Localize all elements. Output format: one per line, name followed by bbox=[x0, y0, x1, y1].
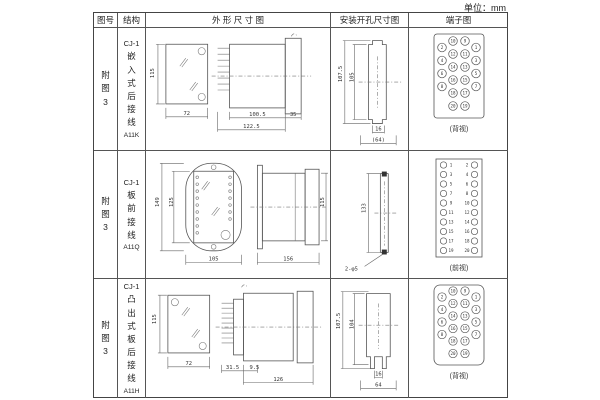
row3-fig-no-label: 附图3 bbox=[100, 319, 111, 359]
row3-outline-cell: 115 72 31.5 9.5 126 bbox=[146, 279, 331, 398]
row3-terminal-drawing: 1091211141316151817201921436587 (背视) bbox=[409, 279, 508, 398]
svg-text:4: 4 bbox=[466, 172, 469, 177]
row2-mounting-drawing: 133 2-φ5 bbox=[331, 151, 408, 279]
header-structure-label: 结构 bbox=[123, 14, 140, 26]
header-outline-label: 外 形 尺 寸 图 bbox=[212, 14, 264, 26]
row3-terminal-cell: 1091211141316151817201921436587 (背视) bbox=[409, 279, 508, 398]
row3-dim-lip: 9.5 bbox=[249, 365, 259, 371]
svg-text:9: 9 bbox=[450, 200, 453, 205]
row3-mount-inner: 104 bbox=[350, 319, 356, 329]
row3-outline-drawing: 115 72 31.5 9.5 126 bbox=[146, 279, 330, 398]
svg-text:16: 16 bbox=[450, 77, 456, 82]
row1-outline-cell: 115 72 100.5 122.5 35 bbox=[146, 28, 331, 151]
svg-text:6: 6 bbox=[466, 181, 469, 186]
row2-mounting-cell: 133 2-φ5 bbox=[331, 151, 409, 279]
svg-text:12: 12 bbox=[450, 51, 456, 56]
row1-structure: CJ-1 嵌入式后接线 A11K bbox=[118, 28, 146, 151]
row3-terminal-grid: 1091211141316151817201921436587 bbox=[438, 287, 480, 358]
svg-text:10: 10 bbox=[464, 200, 470, 205]
row2-mount-holes: 2-φ5 bbox=[345, 266, 358, 272]
svg-text:16: 16 bbox=[464, 229, 470, 234]
row1-mount-slot: 16 bbox=[375, 126, 382, 132]
svg-text:14: 14 bbox=[450, 64, 456, 69]
row3-dim-width: 72 bbox=[185, 361, 192, 367]
svg-text:18: 18 bbox=[450, 339, 456, 344]
row2-terminal-drawing: 1357911131517192468101214161820 (前视) bbox=[409, 151, 508, 279]
row2-terminal-grid: 1357911131517192468101214161820 bbox=[440, 161, 477, 253]
row2-dim-length: 156 bbox=[283, 256, 293, 262]
svg-text:11: 11 bbox=[462, 51, 468, 56]
svg-text:2: 2 bbox=[466, 162, 469, 167]
row1-mounting-cell: 107.5 105 16 (64) bbox=[331, 28, 409, 151]
row1-dim-width: 72 bbox=[183, 110, 190, 116]
svg-text:3: 3 bbox=[450, 172, 453, 177]
row1-terminal-cell: 1091211141316151817201921436587 (背视) bbox=[409, 28, 508, 151]
svg-text:13: 13 bbox=[462, 314, 468, 319]
svg-text:20: 20 bbox=[450, 351, 456, 356]
svg-text:15: 15 bbox=[462, 326, 468, 331]
row1-mount-width: (64) bbox=[372, 137, 385, 143]
header-mounting-label: 安装开孔尺寸图 bbox=[340, 14, 400, 26]
row3-structure: CJ-1 凸出式板后接线 A11H bbox=[118, 279, 146, 398]
svg-text:20: 20 bbox=[450, 103, 456, 108]
row3-mount-slot: 16 bbox=[375, 372, 382, 378]
row3-view-label: (背视) bbox=[450, 371, 469, 380]
svg-text:10: 10 bbox=[450, 289, 456, 294]
row2-dim-plate-h: 149 bbox=[155, 197, 161, 207]
header-fig-no-label: 图号 bbox=[97, 14, 114, 26]
row2-model-label: CJ-1 bbox=[124, 178, 140, 187]
svg-text:11: 11 bbox=[462, 301, 468, 306]
row2-view-label: (前视) bbox=[450, 263, 469, 272]
svg-text:5: 5 bbox=[450, 181, 453, 186]
svg-text:19: 19 bbox=[462, 103, 468, 108]
header-fig-no: 图号 bbox=[94, 13, 118, 28]
header-outline: 外 形 尺 寸 图 bbox=[146, 13, 331, 28]
row1-fig-no-label: 附图3 bbox=[100, 69, 111, 109]
svg-text:12: 12 bbox=[464, 210, 470, 215]
svg-text:17: 17 bbox=[462, 90, 468, 95]
row3-mount-width: 64 bbox=[375, 382, 382, 388]
header-terminal: 端子图 bbox=[409, 13, 508, 28]
row3-model-label: CJ-1 bbox=[124, 282, 140, 291]
row3-dim-pins: 31.5 bbox=[226, 365, 239, 371]
row2-outline-drawing: 149 125 105 156 115 bbox=[146, 151, 330, 279]
row1-dim-height: 115 bbox=[150, 68, 156, 78]
row1-structure-desc: 嵌入式后接线 bbox=[126, 50, 137, 129]
svg-text:17: 17 bbox=[462, 339, 468, 344]
row1-terminal-drawing: 1091211141316151817201921436587 (背视) bbox=[409, 28, 508, 151]
row3-mount-outer: 107.5 bbox=[336, 313, 342, 329]
row2-structure-code: A11Q bbox=[123, 244, 139, 251]
svg-text:8: 8 bbox=[466, 191, 469, 196]
svg-text:18: 18 bbox=[464, 238, 470, 243]
svg-text:10: 10 bbox=[450, 38, 456, 43]
row1-mount-outer: 107.5 bbox=[338, 65, 344, 81]
svg-text:12: 12 bbox=[450, 301, 456, 306]
row2-mount-span: 133 bbox=[362, 203, 368, 213]
header-mounting: 安装开孔尺寸图 bbox=[331, 13, 409, 28]
row1-view-label: (背视) bbox=[450, 124, 469, 133]
row3-structure-code: A11H bbox=[124, 388, 140, 395]
svg-text:15: 15 bbox=[462, 77, 468, 82]
row3-mounting-cell: 107.5 104 16 64 bbox=[331, 279, 409, 398]
row3-structure-desc: 凸出式板后接线 bbox=[126, 293, 137, 385]
row2-terminal-cell: 1357911131517192468101214161820 (前视) bbox=[409, 151, 508, 279]
svg-text:14: 14 bbox=[450, 314, 456, 319]
row1-model-label: CJ-1 bbox=[124, 39, 140, 48]
row1-dim-total: 122.5 bbox=[243, 123, 259, 129]
row2-dim-inner-h: 125 bbox=[169, 197, 175, 207]
row2-structure: CJ-1 板前接线 A11Q bbox=[118, 151, 146, 279]
row1-terminal-grid: 1091211141316151817201921436587 bbox=[438, 36, 481, 110]
svg-text:14: 14 bbox=[464, 219, 470, 224]
svg-text:16: 16 bbox=[450, 326, 456, 331]
svg-text:11: 11 bbox=[448, 210, 454, 215]
row2-fig-no-label: 附图3 bbox=[100, 195, 111, 235]
row3-dim-height: 115 bbox=[152, 314, 158, 324]
svg-text:1: 1 bbox=[450, 162, 453, 167]
svg-text:13: 13 bbox=[448, 219, 454, 224]
row3-fig-no: 附图3 bbox=[94, 279, 118, 398]
dimension-table: 图号 结构 外 形 尺 寸 图 安装开孔尺寸图 端子图 附图3 CJ-1 嵌入式… bbox=[93, 12, 508, 398]
svg-text:15: 15 bbox=[448, 229, 454, 234]
row1-fig-no: 附图3 bbox=[94, 28, 118, 151]
svg-text:17: 17 bbox=[448, 238, 454, 243]
svg-text:19: 19 bbox=[448, 248, 454, 253]
row3-dim-length: 126 bbox=[273, 377, 283, 383]
row1-dim-flange: 35 bbox=[290, 111, 297, 117]
row2-outline-cell: 149 125 105 156 115 bbox=[146, 151, 331, 279]
row1-outline-drawing: 115 72 100.5 122.5 35 bbox=[146, 28, 330, 151]
header-structure: 结构 bbox=[118, 13, 146, 28]
row1-dim-body: 100.5 bbox=[249, 111, 265, 117]
row3-mounting-drawing: 107.5 104 16 64 bbox=[331, 279, 408, 398]
svg-text:20: 20 bbox=[464, 248, 470, 253]
svg-text:13: 13 bbox=[462, 64, 468, 69]
row1-structure-code: A11K bbox=[124, 132, 139, 139]
row2-fig-no: 附图3 bbox=[94, 151, 118, 279]
row2-dim-width: 105 bbox=[209, 256, 219, 262]
svg-text:7: 7 bbox=[450, 191, 453, 196]
svg-text:19: 19 bbox=[462, 351, 468, 356]
header-terminal-label: 端子图 bbox=[446, 14, 472, 26]
row1-mount-inner: 105 bbox=[350, 72, 356, 82]
row2-structure-desc: 板前接线 bbox=[126, 189, 137, 242]
row1-mounting-drawing: 107.5 105 16 (64) bbox=[331, 28, 408, 151]
svg-text:18: 18 bbox=[450, 90, 456, 95]
row2-dim-height: 115 bbox=[320, 197, 326, 207]
